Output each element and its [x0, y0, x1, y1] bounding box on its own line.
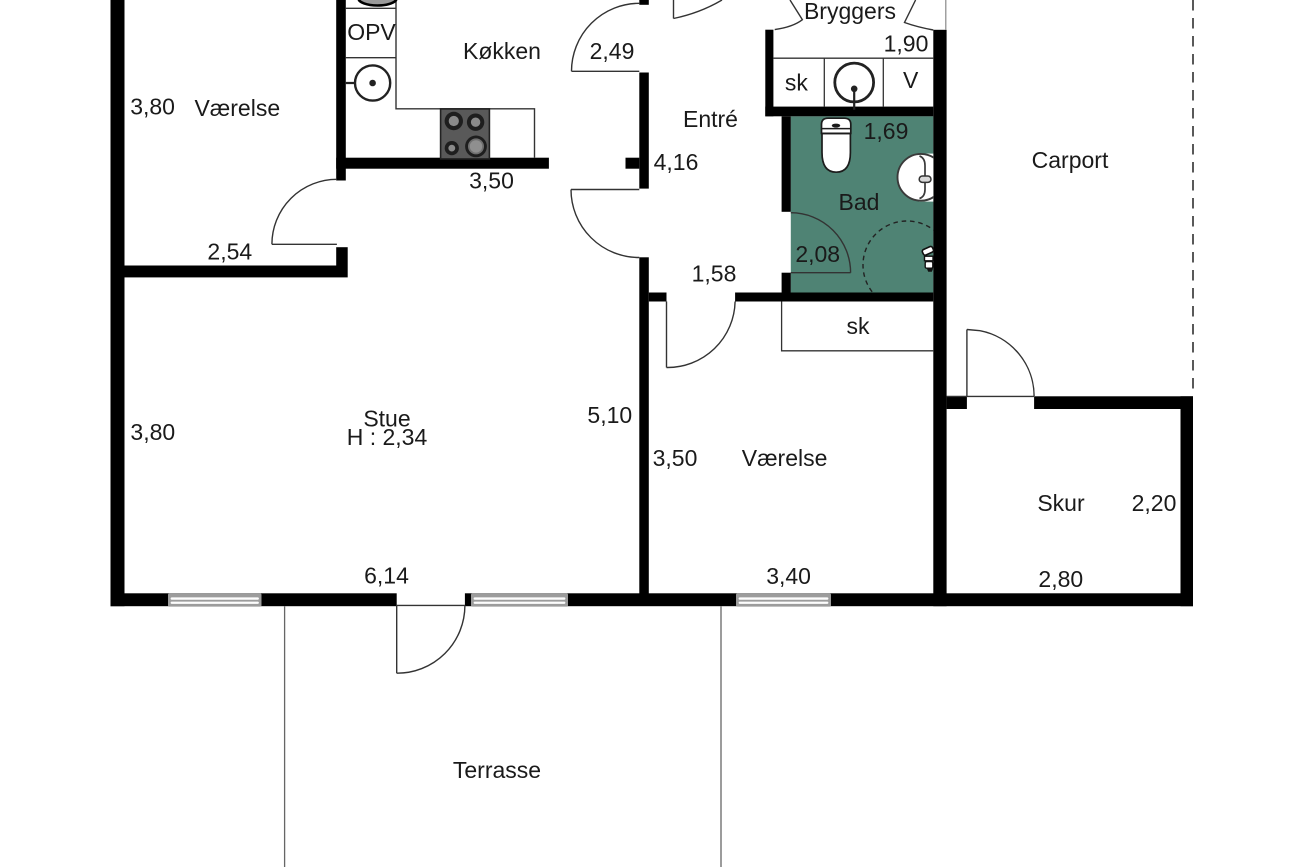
svg-text:3,80: 3,80	[130, 94, 175, 120]
svg-text:4,16: 4,16	[654, 149, 699, 175]
svg-text:1,90: 1,90	[884, 31, 929, 57]
svg-text:5,10: 5,10	[587, 402, 632, 428]
svg-text:Terrasse: Terrasse	[453, 757, 541, 783]
svg-text:1,58: 1,58	[692, 261, 737, 287]
svg-text:3,40: 3,40	[766, 563, 811, 589]
svg-text:1,69: 1,69	[864, 118, 909, 144]
svg-text:OPV: OPV	[347, 19, 396, 45]
svg-text:sk: sk	[785, 70, 809, 96]
svg-text:2,49: 2,49	[590, 38, 635, 64]
svg-text:3,80: 3,80	[130, 419, 175, 445]
svg-text:sk: sk	[847, 313, 871, 339]
svg-text:2,54: 2,54	[207, 239, 252, 265]
svg-text:2,80: 2,80	[1038, 566, 1083, 592]
svg-text:3,50: 3,50	[653, 445, 698, 471]
svg-text:Værelse: Værelse	[742, 445, 828, 471]
svg-text:Bad: Bad	[839, 189, 880, 215]
svg-text:Skur: Skur	[1037, 490, 1085, 516]
svg-text:2,08: 2,08	[795, 241, 840, 267]
svg-text:2,20: 2,20	[1132, 490, 1177, 516]
svg-text:H : 2,34: H : 2,34	[347, 424, 428, 450]
svg-text:3,50: 3,50	[469, 168, 514, 194]
svg-text:Køkken: Køkken	[463, 38, 541, 64]
svg-text:Entré: Entré	[683, 106, 738, 132]
svg-text:6,14: 6,14	[364, 563, 409, 589]
svg-text:Værelse: Værelse	[194, 95, 280, 121]
svg-text:Bryggers: Bryggers	[804, 0, 896, 24]
svg-text:V: V	[903, 67, 919, 93]
svg-text:Carport: Carport	[1032, 147, 1109, 173]
